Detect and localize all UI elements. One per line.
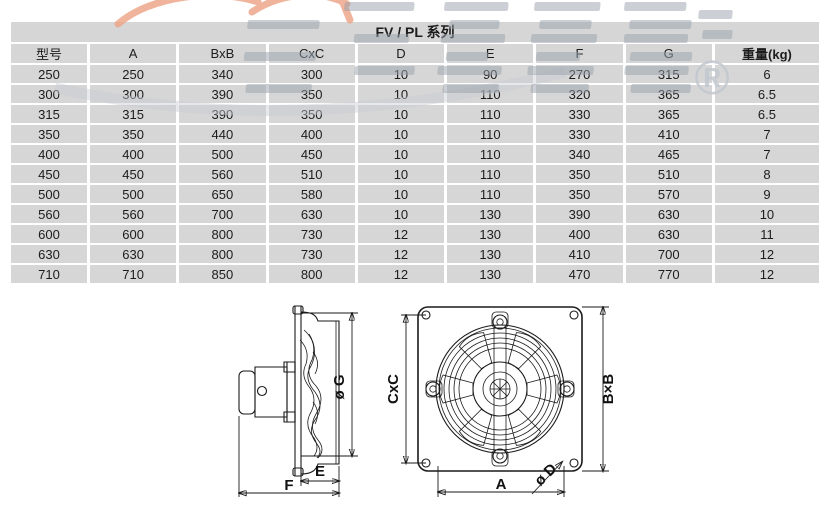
column-header-row: 型号 A BxB CxC D E F G 重量(kg) bbox=[11, 44, 819, 63]
table-cell: 12 bbox=[358, 225, 444, 243]
table-cell: 600 bbox=[90, 225, 176, 243]
col-header-f: F bbox=[536, 44, 622, 63]
table-cell: 560 bbox=[179, 165, 265, 183]
table-row: 500500650580101103505709 bbox=[11, 185, 819, 203]
table-cell: 850 bbox=[179, 265, 265, 283]
table-cell: 320 bbox=[536, 85, 622, 103]
side-view-drawing: ø G E F bbox=[239, 306, 358, 497]
table-cell: 110 bbox=[447, 105, 533, 123]
motor-cap bbox=[239, 371, 255, 414]
table-cell: 350 bbox=[11, 125, 87, 143]
impeller-blades-side bbox=[300, 330, 322, 458]
col-header-weight: 重量(kg) bbox=[715, 44, 819, 63]
dim-cxc bbox=[401, 315, 426, 463]
table-cell: 710 bbox=[11, 265, 87, 283]
dim-label-cxc: CxC bbox=[385, 374, 402, 404]
col-header-g: G bbox=[626, 44, 712, 63]
dim-label-diameter-d: ø D bbox=[531, 460, 560, 489]
table-cell: 400 bbox=[11, 145, 87, 163]
mounting-plate-edge bbox=[295, 306, 301, 476]
col-header-cxc: CxC bbox=[269, 44, 355, 63]
col-header-model: 型号 bbox=[11, 44, 87, 63]
table-cell: 400 bbox=[536, 225, 622, 243]
table-cell: 500 bbox=[90, 185, 176, 203]
table-cell: 10 bbox=[358, 185, 444, 203]
table-cell: 500 bbox=[179, 145, 265, 163]
table-cell: 470 bbox=[536, 265, 622, 283]
table-cell: 770 bbox=[626, 265, 712, 283]
table-cell: 450 bbox=[269, 145, 355, 163]
table-cell: 110 bbox=[447, 125, 533, 143]
table-cell: 465 bbox=[626, 145, 712, 163]
table-cell: 130 bbox=[447, 245, 533, 263]
table-cell: 440 bbox=[179, 125, 265, 143]
table-cell: 10 bbox=[358, 105, 444, 123]
table-cell: 12 bbox=[715, 265, 819, 283]
table-cell: 510 bbox=[626, 165, 712, 183]
table-cell: 800 bbox=[179, 245, 265, 263]
table-cell: 10 bbox=[358, 125, 444, 143]
table-cell: 10 bbox=[358, 65, 444, 83]
fan-dimension-drawings: ø G E F bbox=[0, 285, 830, 519]
dim-label-bxb: B×B bbox=[600, 374, 617, 405]
table-cell: 10 bbox=[358, 85, 444, 103]
table-cell: 12 bbox=[715, 245, 819, 263]
table-row: 300300390350101103203656.5 bbox=[11, 85, 819, 103]
table-cell: 6.5 bbox=[715, 105, 819, 123]
table-cell: 710 bbox=[90, 265, 176, 283]
table-cell: 340 bbox=[179, 65, 265, 83]
table-cell: 390 bbox=[179, 105, 265, 123]
table-cell: 580 bbox=[269, 185, 355, 203]
table-cell: 400 bbox=[90, 145, 176, 163]
series-title: FV / PL 系列 bbox=[11, 22, 819, 42]
table-cell: 410 bbox=[536, 245, 622, 263]
table-cell: 700 bbox=[179, 205, 265, 223]
table-cell: 730 bbox=[269, 245, 355, 263]
table-cell: 570 bbox=[626, 185, 712, 203]
table-cell: 365 bbox=[626, 105, 712, 123]
table-cell: 315 bbox=[11, 105, 87, 123]
table-cell: 800 bbox=[179, 225, 265, 243]
series-title-row: FV / PL 系列 bbox=[11, 22, 819, 42]
table-cell: 630 bbox=[11, 245, 87, 263]
table-cell: 6 bbox=[715, 65, 819, 83]
table-cell: 110 bbox=[447, 165, 533, 183]
motor-bolt bbox=[258, 387, 267, 396]
table-cell: 350 bbox=[536, 185, 622, 203]
table-cell: 10 bbox=[358, 205, 444, 223]
table-row: 350350440400101103304107 bbox=[11, 125, 819, 143]
table-cell: 390 bbox=[536, 205, 622, 223]
table-cell: 90 bbox=[447, 65, 533, 83]
table-cell: 340 bbox=[536, 145, 622, 163]
table-cell: 630 bbox=[90, 245, 176, 263]
table-row: 7107108508001213047077012 bbox=[11, 265, 819, 283]
table-cell: 130 bbox=[447, 205, 533, 223]
table-cell: 300 bbox=[269, 65, 355, 83]
table-cell: 250 bbox=[90, 65, 176, 83]
table-cell: 630 bbox=[626, 225, 712, 243]
table-cell: 9 bbox=[715, 185, 819, 203]
table-cell: 350 bbox=[536, 165, 622, 183]
front-view-drawing: CxC B×B A ø D bbox=[385, 307, 617, 497]
table-cell: 8 bbox=[715, 165, 819, 183]
dim-label-f: F bbox=[284, 477, 293, 494]
table-row: 25025034030010902703156 bbox=[11, 65, 819, 83]
table-cell: 11 bbox=[715, 225, 819, 243]
table-cell: 560 bbox=[11, 205, 87, 223]
table-cell: 7 bbox=[715, 125, 819, 143]
table-cell: 700 bbox=[626, 245, 712, 263]
table-cell: 630 bbox=[626, 205, 712, 223]
table-cell: 365 bbox=[626, 85, 712, 103]
mounting-hole bbox=[570, 311, 578, 319]
table-cell: 450 bbox=[11, 165, 87, 183]
table-cell: 12 bbox=[358, 265, 444, 283]
table-cell: 510 bbox=[269, 165, 355, 183]
table-cell: 315 bbox=[90, 105, 176, 123]
table-cell: 330 bbox=[536, 125, 622, 143]
table-cell: 110 bbox=[447, 85, 533, 103]
dim-label-a: A bbox=[496, 476, 507, 493]
col-header-a: A bbox=[90, 44, 176, 63]
table-cell: 400 bbox=[269, 125, 355, 143]
table-cell: 300 bbox=[11, 85, 87, 103]
table-cell: 6.5 bbox=[715, 85, 819, 103]
table-cell: 110 bbox=[447, 185, 533, 203]
table-cell: 12 bbox=[358, 245, 444, 263]
col-header-e: E bbox=[447, 44, 533, 63]
table-cell: 130 bbox=[447, 225, 533, 243]
table-cell: 800 bbox=[269, 265, 355, 283]
table-cell: 130 bbox=[447, 265, 533, 283]
table-row: 6306308007301213041070012 bbox=[11, 245, 819, 263]
table-row: 450450560510101103505108 bbox=[11, 165, 819, 183]
table-row: 6006008007301213040063011 bbox=[11, 225, 819, 243]
table-row: 315315390350101103303656.5 bbox=[11, 105, 819, 123]
table-cell: 350 bbox=[90, 125, 176, 143]
table-cell: 10 bbox=[715, 205, 819, 223]
table-cell: 270 bbox=[536, 65, 622, 83]
table-cell: 450 bbox=[90, 165, 176, 183]
table-cell: 650 bbox=[179, 185, 265, 203]
col-header-d: D bbox=[358, 44, 444, 63]
table-cell: 390 bbox=[179, 85, 265, 103]
table-cell: 250 bbox=[11, 65, 87, 83]
table-cell: 350 bbox=[269, 85, 355, 103]
spec-table: FV / PL 系列 型号 A BxB CxC D E F G 重量(kg) 2… bbox=[8, 20, 822, 285]
table-cell: 410 bbox=[626, 125, 712, 143]
table-cell: 315 bbox=[626, 65, 712, 83]
mounting-hole bbox=[570, 459, 578, 467]
table-cell: 330 bbox=[536, 105, 622, 123]
table-row: 400400500450101103404657 bbox=[11, 145, 819, 163]
hub bbox=[473, 362, 527, 416]
table-cell: 110 bbox=[447, 145, 533, 163]
dim-label-diameter-g: ø G bbox=[331, 375, 348, 400]
col-header-bxb: BxB bbox=[179, 44, 265, 63]
table-body: 2502503403001090270315630030039035010110… bbox=[11, 65, 819, 283]
table-cell: 560 bbox=[90, 205, 176, 223]
table-cell: 10 bbox=[358, 145, 444, 163]
table-cell: 7 bbox=[715, 145, 819, 163]
dim-label-e: E bbox=[315, 463, 325, 480]
table-cell: 500 bbox=[11, 185, 87, 203]
table-cell: 10 bbox=[358, 165, 444, 183]
table-row: 5605607006301013039063010 bbox=[11, 205, 819, 223]
table-cell: 350 bbox=[269, 105, 355, 123]
table-cell: 300 bbox=[90, 85, 176, 103]
table-cell: 600 bbox=[11, 225, 87, 243]
motor-body bbox=[255, 367, 287, 417]
table-cell: 730 bbox=[269, 225, 355, 243]
table-cell: 630 bbox=[269, 205, 355, 223]
